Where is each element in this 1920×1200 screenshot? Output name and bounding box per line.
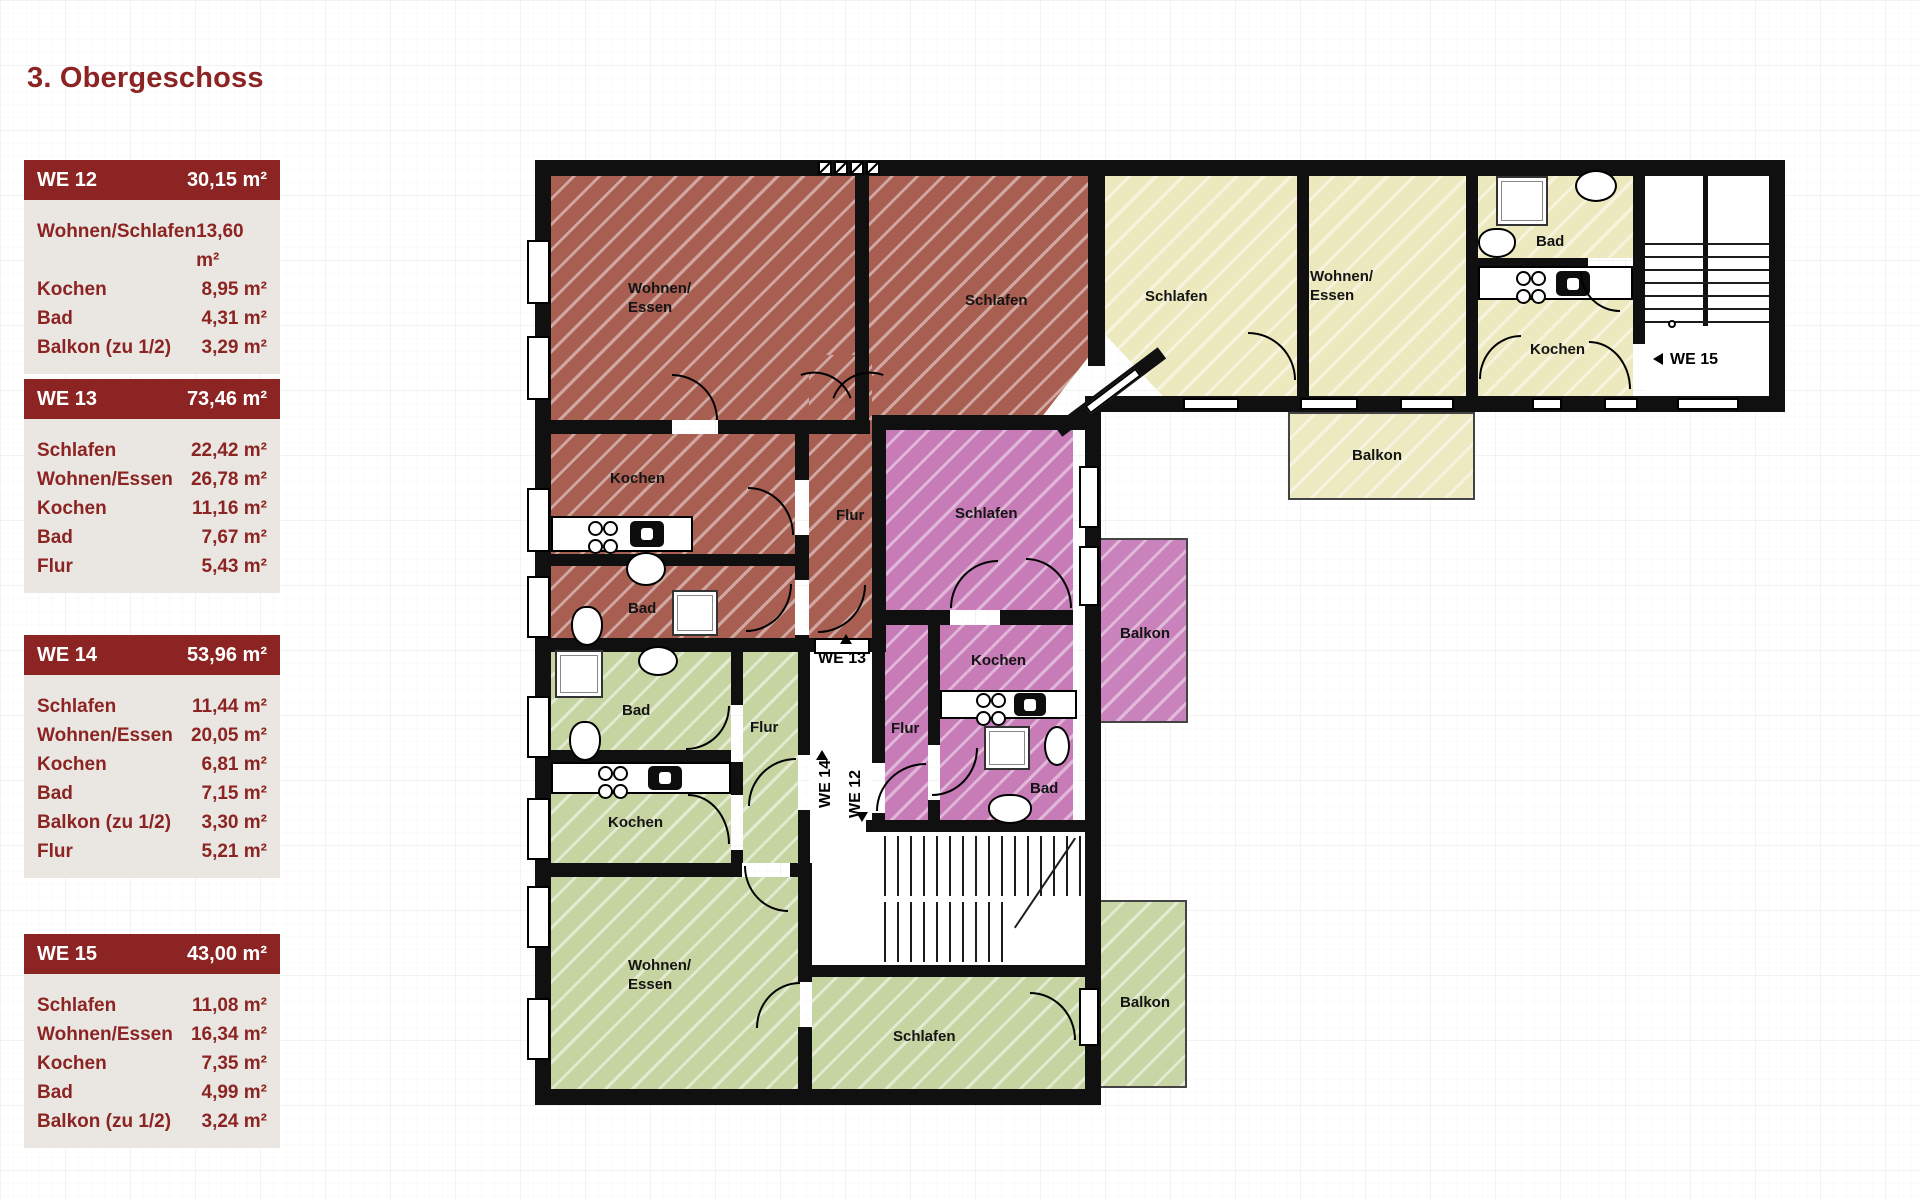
window <box>527 240 550 304</box>
kitchen-counter <box>551 762 731 794</box>
table-row: Balkon (zu 1/2)3,24 m² <box>37 1107 267 1136</box>
unit-table-we12: WE 1230,15 m² Wohnen/Schlafen13,60 m² Ko… <box>24 160 280 374</box>
wall <box>1769 160 1785 412</box>
room-label: Schlafen <box>893 1028 956 1047</box>
stove-icon <box>598 766 625 799</box>
glass-block-window <box>818 161 832 175</box>
toilet-icon <box>569 721 601 761</box>
wall <box>928 800 940 820</box>
table-row: Wohnen/Essen16,34 m² <box>37 1020 267 1049</box>
unit-total-area: 73,46 m² <box>187 388 267 411</box>
wall <box>535 1089 1101 1105</box>
room-label: Kochen <box>610 470 665 489</box>
stair-treads <box>873 836 1085 896</box>
wall <box>880 610 950 625</box>
entrance-label-we12: WE 12 <box>847 770 865 818</box>
room-label: Schlafen <box>965 292 1028 311</box>
window <box>527 998 550 1060</box>
table-row: Balkon (zu 1/2)3,29 m² <box>37 333 267 362</box>
wall <box>731 762 743 795</box>
wall <box>928 625 940 745</box>
door-direction-arrow-icon <box>840 634 852 644</box>
room-label: Bad <box>628 600 656 619</box>
stair-treads <box>873 902 1010 962</box>
wall <box>798 810 810 863</box>
window <box>527 886 550 948</box>
wall <box>1633 176 1645 344</box>
wall <box>731 652 743 705</box>
table-row: Bad4,99 m² <box>37 1078 267 1107</box>
window <box>527 576 550 638</box>
table-row: Schlafen11,08 m² <box>37 991 267 1020</box>
window <box>1300 398 1358 410</box>
room-label: Flur <box>836 507 864 526</box>
window <box>1604 398 1638 410</box>
wall <box>810 965 1085 977</box>
wall <box>1000 610 1073 625</box>
table-row: Flur5,43 m² <box>37 552 267 581</box>
glass-block-window <box>850 161 864 175</box>
table-row: Bad7,15 m² <box>37 779 267 808</box>
wall <box>1466 176 1478 398</box>
balcony-door <box>1079 546 1099 606</box>
room-label: Wohnen/ Essen <box>628 957 691 995</box>
wall <box>718 420 870 434</box>
wall <box>1297 176 1309 398</box>
unit-name: WE 13 <box>37 388 97 411</box>
room-label: Wohnen/ Essen <box>628 280 691 318</box>
table-row: Flur5,21 m² <box>37 837 267 866</box>
room-label: Kochen <box>971 652 1026 671</box>
room-label: Kochen <box>608 814 663 833</box>
window <box>1183 398 1239 410</box>
toilet-icon <box>1478 228 1516 258</box>
toilet-icon <box>571 606 603 646</box>
wall <box>551 554 795 566</box>
toilet-icon <box>988 794 1032 824</box>
room-label: Bad <box>1536 233 1564 252</box>
window <box>527 488 550 552</box>
sink-icon <box>626 552 666 586</box>
table-row: Wohnen/Essen20,05 m² <box>37 721 267 750</box>
room-label: Schlafen <box>955 505 1018 524</box>
wall <box>790 863 800 877</box>
table-row: Kochen8,95 m² <box>37 275 267 304</box>
wall <box>535 863 742 877</box>
door-direction-arrow-icon <box>1653 353 1663 365</box>
unit-table-we13: WE 1373,46 m² Schlafen22,42 m² Wohnen/Es… <box>24 379 280 593</box>
stove-icon <box>976 693 1003 726</box>
unit-name: WE 14 <box>37 644 97 667</box>
table-row: Bad7,67 m² <box>37 523 267 552</box>
entrance-label-we15: WE 15 <box>1670 351 1718 369</box>
door-direction-arrow-icon <box>816 750 828 760</box>
window <box>527 798 550 860</box>
room-label: Flur <box>891 720 919 739</box>
table-row: Kochen6,81 m² <box>37 750 267 779</box>
stove-icon <box>1516 271 1543 304</box>
unit-table-we15: WE 1543,00 m² Schlafen11,08 m² Wohnen/Es… <box>24 934 280 1148</box>
entrance-label-we13: WE 13 <box>818 650 866 668</box>
room-label: Schlafen <box>1145 288 1208 307</box>
room-label: Balkon <box>1352 447 1402 466</box>
room-label: Wohnen/ Essen <box>1310 268 1373 306</box>
window <box>527 336 550 400</box>
wall <box>795 434 809 480</box>
shower-icon <box>672 590 718 636</box>
shower-icon <box>555 650 603 698</box>
table-row: Kochen11,16 m² <box>37 494 267 523</box>
table-row: Schlafen22,42 m² <box>37 436 267 465</box>
unit-total-area: 43,00 m² <box>187 943 267 966</box>
kitchen-sink-icon <box>648 766 682 790</box>
unit-table-we14: WE 1453,96 m² Schlafen11,44 m² Wohnen/Es… <box>24 635 280 878</box>
glass-block-window <box>866 161 880 175</box>
table-row: Kochen7,35 m² <box>37 1049 267 1078</box>
unit-name: WE 12 <box>37 169 97 192</box>
table-row: Bad4,31 m² <box>37 304 267 333</box>
window <box>1532 398 1562 410</box>
sink-icon <box>638 646 678 676</box>
kitchen-sink-icon <box>630 521 664 547</box>
window <box>527 696 550 758</box>
door-direction-arrow-icon <box>856 812 868 822</box>
sink-icon <box>1575 170 1617 202</box>
wall <box>1088 176 1105 366</box>
balcony-door <box>1079 988 1099 1046</box>
page-title: 3. Obergeschoss <box>27 62 264 95</box>
handrail-post <box>1668 320 1676 328</box>
room-label: Kochen <box>1530 341 1585 360</box>
shower-icon <box>984 726 1030 770</box>
room-label: Flur <box>750 719 778 738</box>
unit-total-area: 53,96 m² <box>187 644 267 667</box>
wall <box>872 415 1085 430</box>
wall <box>866 820 1085 832</box>
wall <box>535 420 672 434</box>
door <box>1677 398 1739 410</box>
unit-name: WE 15 <box>37 943 97 966</box>
wall <box>872 645 885 763</box>
glass-block-window <box>834 161 848 175</box>
window <box>1400 398 1454 410</box>
shower-icon <box>1496 176 1548 226</box>
entrance-label-we14: WE 14 <box>817 760 835 808</box>
sink-icon <box>1044 726 1070 766</box>
room-label: Bad <box>1030 780 1058 799</box>
unit-total-area: 30,15 m² <box>187 169 267 192</box>
wall <box>795 535 809 580</box>
kitchen-counter <box>551 516 693 552</box>
stair-treads <box>1645 232 1769 327</box>
stove-icon <box>588 521 615 554</box>
wall <box>798 652 810 755</box>
room-label: Balkon <box>1120 994 1170 1013</box>
table-row: Balkon (zu 1/2)3,30 m² <box>37 808 267 837</box>
room-label: Balkon <box>1120 625 1170 644</box>
wall <box>798 1027 812 1089</box>
table-row: Wohnen/Essen26,78 m² <box>37 465 267 494</box>
table-row: Wohnen/Schlafen13,60 m² <box>37 217 267 275</box>
kitchen-counter <box>940 690 1077 719</box>
table-row: Schlafen11,44 m² <box>37 692 267 721</box>
wall <box>731 850 743 863</box>
kitchen-sink-icon <box>1014 693 1046 716</box>
room-label: Bad <box>622 702 650 721</box>
window <box>1079 466 1099 528</box>
